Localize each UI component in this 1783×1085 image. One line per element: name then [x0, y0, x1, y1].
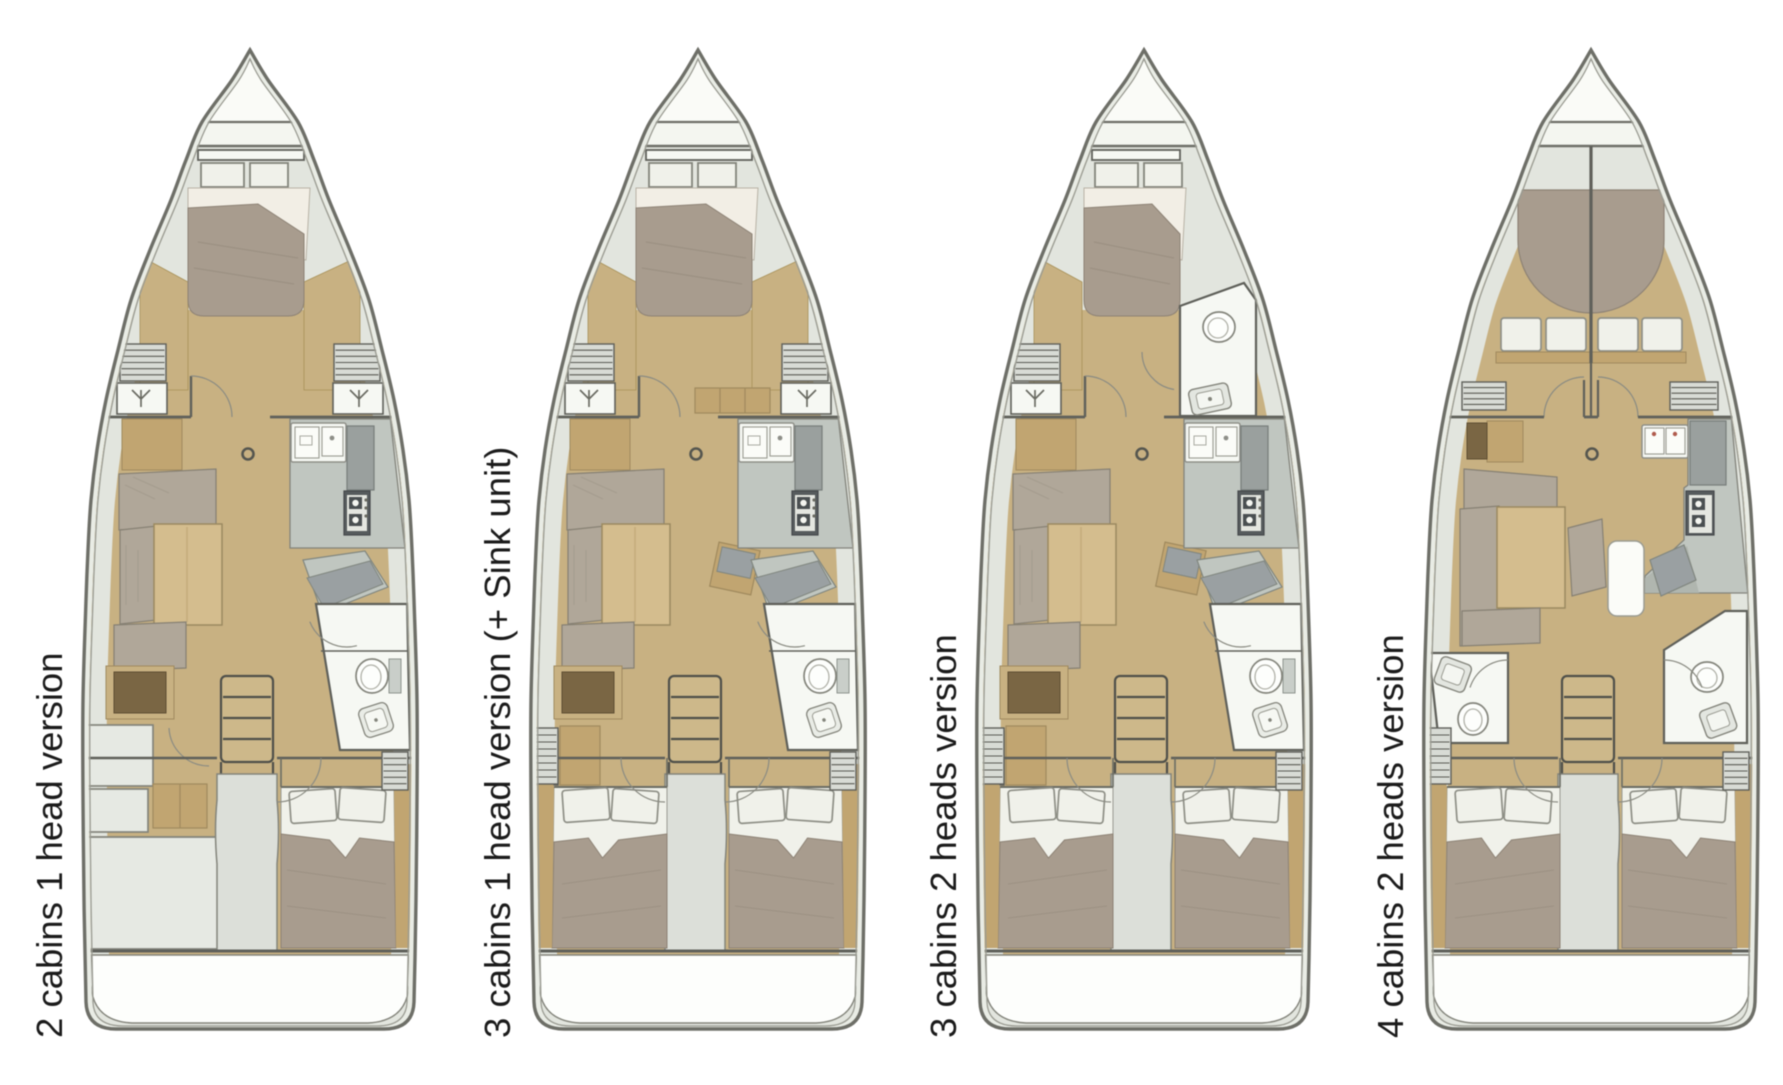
- svg-text:3 cabins 2 heads version: 3 cabins 2 heads version: [923, 634, 964, 1038]
- svg-text:4 cabins 2 heads version: 4 cabins 2 heads version: [1370, 634, 1411, 1038]
- svg-text:2 cabins 1 head version: 2 cabins 1 head version: [29, 652, 70, 1038]
- svg-text:3 cabins 1 head version (+ Sin: 3 cabins 1 head version (+ Sink unit): [477, 447, 518, 1038]
